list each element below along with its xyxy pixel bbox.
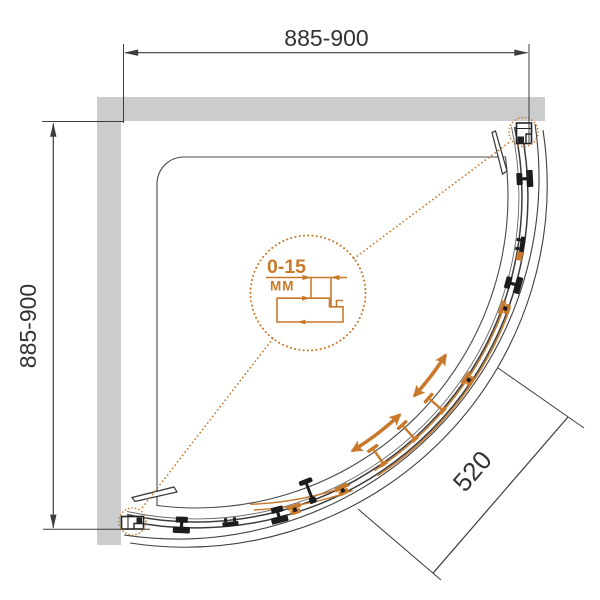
slide-direction-arrows xyxy=(352,355,445,451)
wall-profile-bottom-left xyxy=(122,517,144,530)
adjustment-unit-label: MM xyxy=(270,279,295,294)
dimension-left: 885-900 xyxy=(15,122,150,530)
callout-connector-lower xyxy=(140,339,273,511)
adjustment-arrows xyxy=(297,275,340,325)
rail-bracket-icon xyxy=(222,517,239,527)
ext-line-diag-upper xyxy=(498,368,584,428)
door-hanger-icon xyxy=(366,443,390,469)
tray-outer-rim-arc xyxy=(130,130,547,547)
detail-circle xyxy=(251,236,366,351)
wall-profile-section xyxy=(277,298,343,322)
dim-line-diag xyxy=(433,417,568,573)
dim-value-left: 885-900 xyxy=(15,284,41,368)
glass-inner-arc xyxy=(127,127,519,519)
door-panel-1-outer xyxy=(378,308,511,476)
technical-drawing-page: 0-15 MM 885-900 885-900 xyxy=(0,0,600,600)
shower-enclosure-drawing: 0-15 MM 885-900 885-900 xyxy=(0,0,600,600)
ext-line-diag-lower xyxy=(358,509,441,580)
dim-value-top: 885-900 xyxy=(284,25,368,51)
roller-block-icon xyxy=(516,170,533,188)
door-seal-blades xyxy=(132,131,507,502)
enclosure-arcs xyxy=(124,124,547,547)
left-wall xyxy=(97,97,121,545)
top-wall xyxy=(97,97,545,121)
adjustment-range-label: 0-15 xyxy=(267,256,306,278)
dimension-door-opening: 520 xyxy=(358,368,584,580)
callout-connector-upper xyxy=(354,141,511,259)
detail-adjustment-sketch: 0-15 MM xyxy=(266,256,347,324)
bottom-door-seal-blade xyxy=(132,487,177,502)
dimension-top: 885-900 xyxy=(124,25,530,143)
tray-inner-edge xyxy=(157,157,508,508)
roller-block-icon xyxy=(173,516,191,533)
top-door-seal-blade xyxy=(492,131,507,174)
dim-value-door-opening: 520 xyxy=(447,445,498,497)
